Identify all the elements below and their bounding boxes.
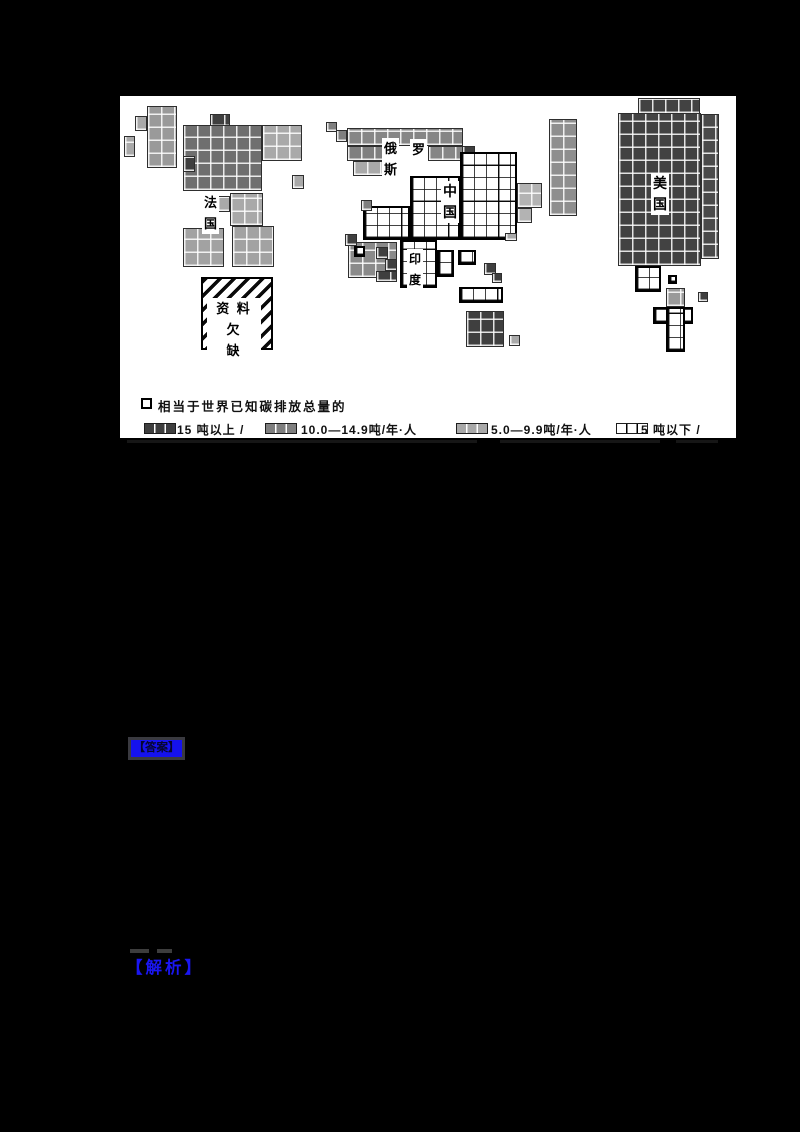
region-uk [147,106,177,168]
region-russia-cell-2 [336,130,347,142]
legend-swatch-mid [265,423,297,434]
region-italy [232,226,274,267]
label-russia-char2: 罗 [410,139,427,160]
answer-link-label[interactable]: 【答案】 [131,740,182,757]
region-central-america-cell [668,275,677,284]
region-mideast-white-cell [354,246,365,257]
region-southamerica-col [666,307,685,352]
region-russia-east [428,146,463,161]
region-indonesia [459,287,503,303]
region-korea-block-1 [517,183,542,208]
region-mideast-dark-2 [376,247,388,259]
region-balkans-block [230,193,263,226]
legend-swatch-low [456,423,488,434]
label-france: 法 国 [202,192,219,234]
region-seasia-dark-2 [492,273,502,283]
region-usa-right-col [701,114,719,259]
answer-link[interactable]: 【答案】 [128,737,185,760]
figure-bottom-fringe [127,440,477,443]
region-southamerica-gray [666,288,685,307]
region-japan [549,119,577,216]
region-mideast-dark-4 [376,271,397,282]
region-europe-dark-cell [183,156,195,172]
region-australia [466,311,504,347]
region-india-wing [437,250,454,277]
legend-label-mid: 10.0—14.9吨/年·人 [301,421,417,438]
region-russia-strip [347,128,463,146]
legend-label-high: 15 吨以上 / [177,421,244,438]
region-mideast-dark-1 [345,234,357,246]
region-venezuela-dark-cell [698,292,708,302]
region-china-west-gray-cell [361,200,372,211]
text-remnant-mark [157,949,172,953]
no-data-hatched-box: 资 料 欠 缺 [201,277,273,350]
region-china-main [460,152,517,240]
no-data-label: 资 料 欠 缺 [207,298,261,361]
region-ireland [135,116,147,131]
unit-square-icon [141,398,152,409]
figure-bottom-fringe [676,440,718,443]
text-remnant-mark [130,949,149,953]
legend-label-min: 5 吨以下 / [641,421,701,438]
region-australia-gray-cell [509,335,520,346]
legend-unit-note: 相当于世界已知碳排放总量的 [158,396,347,415]
region-korea-block-2 [517,208,532,223]
region-russia-west-light [353,161,385,176]
analysis-link[interactable]: 【解析】 [126,954,204,978]
region-usa-canada-top [638,98,700,114]
region-indochina [458,250,476,265]
emissions-cartogram-panel: 资 料 欠 缺 法 国俄罗斯中 国印 度美 国 相当于世界已知碳排放总量的 15… [120,96,736,438]
region-iceland [124,136,135,157]
label-usa: 美 国 [651,173,669,215]
region-china-west [363,206,410,240]
region-mexico [635,266,661,292]
region-mideast-dark-3 [385,259,397,271]
legend-swatch-high [144,423,176,434]
region-europe-cell-right [292,175,304,189]
label-india: 印 度 [407,249,423,291]
region-china-se-gray-cell [505,233,517,241]
region-europe-east [262,125,302,161]
label-china: 中 国 [441,181,459,223]
region-russia-west [347,146,385,161]
figure-bottom-fringe [500,440,660,443]
label-russia-char3: 斯 [382,159,399,180]
legend-label-low: 5.0—9.9吨/年·人 [491,421,592,438]
label-russia-char1: 俄 [382,138,399,159]
